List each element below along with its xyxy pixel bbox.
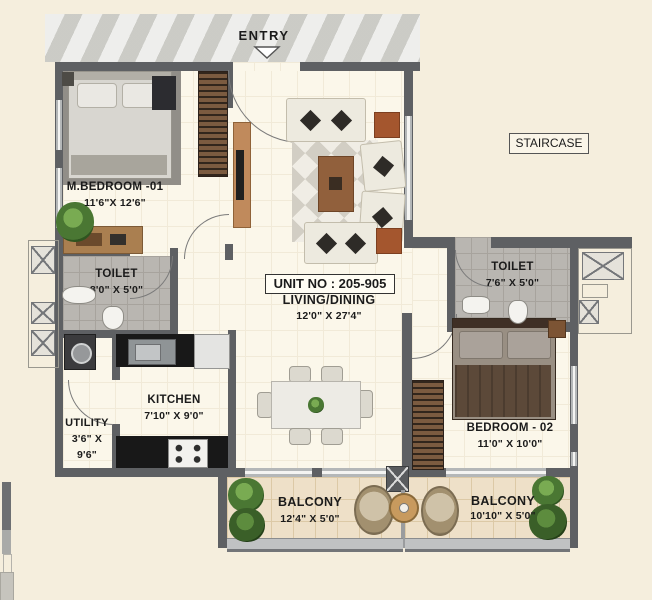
sofa-cushion: [331, 109, 352, 130]
duct-xbox: [31, 302, 55, 324]
unit-no-label: UNIT NO : 205-905: [265, 274, 395, 294]
washbasin: [462, 296, 490, 314]
rail-block: [312, 468, 322, 477]
sink-basin: [135, 344, 161, 361]
wall-staircase-b: [491, 237, 632, 248]
room-label-living: LIVING/DINING: [262, 293, 396, 307]
room-dims-balcony2: 10'10" X 5'0": [444, 510, 562, 522]
staircase-label: STAIRCASE: [509, 133, 589, 154]
window: [571, 366, 577, 424]
neighbour-wall-fragment: [0, 572, 14, 600]
rail-block: [236, 468, 245, 477]
room-dims-mbedroom: 11'6"X 12'6": [40, 197, 190, 209]
bed-pillow: [459, 331, 503, 359]
dining-chair: [289, 428, 311, 445]
table-centerpiece: [308, 397, 324, 413]
coffee-table: [318, 156, 354, 212]
side-table: [548, 320, 566, 338]
wall-bedroom2-west: [402, 313, 412, 477]
room-dims-balcony1: 12'4" X 5'0": [250, 513, 370, 525]
neighbour-wall-fragment: [2, 482, 11, 530]
window: [56, 100, 62, 150]
window: [571, 452, 577, 466]
sofa-two-seater: [286, 98, 366, 142]
wall-staircase-a: [404, 237, 455, 248]
room-label-utility: UTILITY: [56, 417, 118, 429]
room-dims-utility-1: 3'6" X: [56, 433, 118, 445]
room-dims-utility-2: 9'6": [56, 449, 118, 461]
wall-balcony1-west: [218, 468, 227, 548]
duct-xbox: [31, 246, 55, 274]
double-bed: [452, 318, 556, 420]
armchair: [360, 140, 407, 192]
balcony2-parapet: [405, 538, 570, 552]
bed-headboard: [453, 319, 555, 328]
room-label-toilet2: TOILET: [455, 261, 570, 273]
duct-xbox: [582, 252, 624, 280]
tv: [236, 150, 244, 200]
duct-xbox: [579, 300, 599, 324]
patio-table: [389, 493, 419, 523]
stove: [168, 439, 208, 468]
room-label-bedroom2: BEDROOM - 02: [440, 422, 580, 434]
sofa-cushion: [345, 232, 366, 253]
washbasin: [62, 286, 96, 304]
wardrobe: [198, 71, 228, 177]
kitchen-sink: [128, 339, 176, 365]
bed-runner: [71, 155, 167, 175]
washing-machine: [64, 334, 96, 370]
bed-blanket: [455, 365, 551, 417]
room-label-balcony1: BALCONY: [250, 495, 370, 509]
sofa-cushion: [316, 232, 337, 253]
sofa-two-seater: [304, 222, 378, 264]
dining-chair: [321, 428, 343, 445]
bedside-lamp: [62, 72, 74, 86]
rattan-chair: [354, 485, 394, 535]
sliding-door-balcony2: [446, 468, 546, 477]
dining-table: [271, 381, 361, 429]
duct-step: [582, 284, 608, 298]
coffee-table-decor: [329, 177, 342, 190]
sofa-cushion: [300, 109, 321, 130]
floor-plan: ENTRY STAIRCASE UNIT NO : 205-905 LIVING…: [0, 0, 652, 600]
room-label-toilet1: TOILET: [63, 268, 170, 280]
wall-top-right: [300, 62, 420, 71]
tall-cabinet: [152, 76, 176, 110]
wall-top-left: [55, 62, 228, 71]
bed-pillow: [77, 83, 117, 108]
entry-direction-icon: [253, 45, 281, 60]
neighbour-wall-fragment: [2, 530, 11, 554]
sofa-cushion: [372, 155, 393, 176]
room-dims-kitchen: 7'10" X 9'0": [120, 410, 228, 422]
dresser-item: [110, 234, 126, 245]
side-table: [374, 112, 400, 138]
room-label-balcony2: BALCONY: [444, 494, 562, 508]
duct-xbox: [31, 330, 55, 356]
room-label-mbedroom: M.BEDROOM -01: [40, 181, 190, 193]
side-table: [376, 228, 402, 254]
window: [405, 116, 412, 220]
patio-cup: [399, 503, 409, 513]
wall-kitchen-bottom: [55, 468, 236, 477]
washer-drum: [71, 343, 92, 364]
entry-label: ENTRY: [222, 28, 306, 43]
room-dims-toilet2: 7'6" X 5'0": [455, 277, 570, 289]
toilet-wc: [508, 300, 528, 324]
balcony-divider-column: [386, 466, 409, 492]
toilet-wc: [102, 306, 124, 330]
bed-pillow: [507, 331, 551, 359]
fridge: [194, 334, 230, 369]
room-label-kitchen: KITCHEN: [120, 394, 228, 406]
room-dims-bedroom2: 11'0" X 10'0": [440, 438, 580, 450]
room-dims-living: 12'0" X 27'4": [262, 310, 396, 322]
